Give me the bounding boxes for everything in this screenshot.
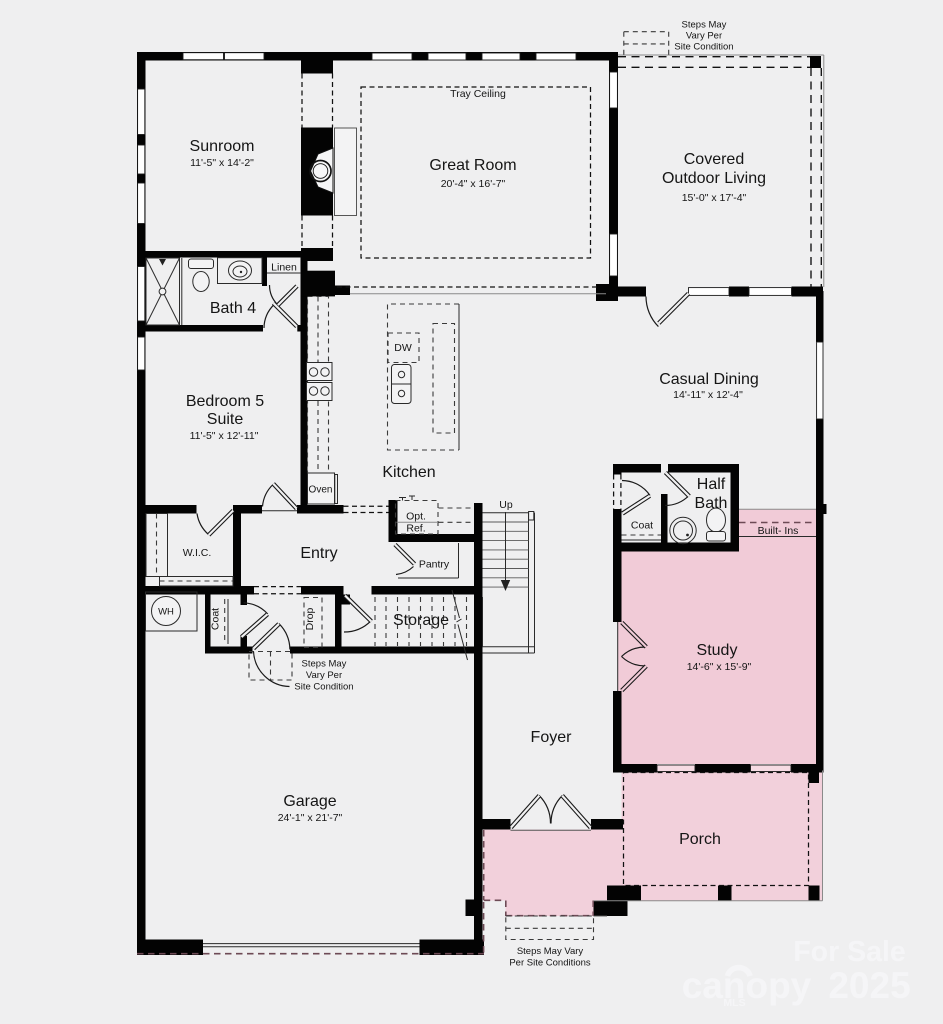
svg-text:Covered: Covered <box>684 151 744 168</box>
svg-text:Steps May Vary: Steps May Vary <box>517 946 584 957</box>
svg-text:Foyer: Foyer <box>531 729 573 746</box>
svg-text:Porch: Porch <box>679 831 721 848</box>
svg-text:Linen: Linen <box>271 262 297 274</box>
svg-text:Outdoor Living: Outdoor Living <box>662 170 766 187</box>
svg-text:Bedroom 5: Bedroom 5 <box>186 393 264 410</box>
svg-text:Drop: Drop <box>304 607 316 630</box>
svg-text:Opt.: Opt. <box>406 511 426 523</box>
svg-text:Sunroom: Sunroom <box>190 138 255 155</box>
svg-text:Suite: Suite <box>207 411 244 428</box>
svg-text:Pantry: Pantry <box>419 559 450 571</box>
svg-text:11'-5" x 12'-11": 11'-5" x 12'-11" <box>190 430 259 442</box>
svg-text:Site Condition: Site Condition <box>294 682 353 693</box>
svg-text:Bath 4: Bath 4 <box>210 300 256 317</box>
svg-text:15'-0" x 17'-4": 15'-0" x 17'-4" <box>682 192 747 204</box>
svg-text:Coat: Coat <box>631 520 653 532</box>
svg-text:Half: Half <box>697 476 726 493</box>
svg-text:Steps May: Steps May <box>302 659 347 670</box>
svg-text:MLS: MLS <box>723 997 745 1009</box>
svg-text:14'-6" x 15'-9": 14'-6" x 15'-9" <box>687 661 752 673</box>
svg-text:Casual Dining: Casual Dining <box>659 371 759 388</box>
svg-text:W.I.C.: W.I.C. <box>183 547 212 559</box>
svg-text:Study: Study <box>697 642 738 659</box>
svg-text:Per Site Conditions: Per Site Conditions <box>509 958 591 969</box>
svg-text:Garage: Garage <box>283 793 336 810</box>
svg-text:WH: WH <box>158 607 174 618</box>
svg-text:Entry: Entry <box>300 545 337 562</box>
svg-text:20'-4" x 16'-7": 20'-4" x 16'-7" <box>441 178 506 190</box>
svg-text:Storage: Storage <box>393 612 449 629</box>
svg-text:Ref.: Ref. <box>406 523 425 535</box>
svg-text:Vary Per: Vary Per <box>306 670 342 681</box>
svg-text:Bath: Bath <box>695 495 728 512</box>
svg-text:Steps May: Steps May <box>682 20 727 31</box>
svg-text:For Sale: For Sale <box>793 936 905 968</box>
svg-text:Great Room: Great Room <box>429 157 516 174</box>
svg-text:2025: 2025 <box>828 965 910 1006</box>
svg-text:Vary Per: Vary Per <box>686 31 722 42</box>
svg-text:11'-5" x 14'-2": 11'-5" x 14'-2" <box>190 157 254 169</box>
svg-text:Kitchen: Kitchen <box>382 464 435 481</box>
svg-text:Site Condition: Site Condition <box>674 42 733 53</box>
svg-text:Built- Ins: Built- Ins <box>758 525 799 537</box>
svg-text:Up: Up <box>499 499 513 511</box>
svg-text:14'-11" x 12'-4": 14'-11" x 12'-4" <box>673 389 743 401</box>
svg-text:24'-1" x 21'-7": 24'-1" x 21'-7" <box>278 812 343 824</box>
svg-text:Tray Ceiling: Tray Ceiling <box>450 88 506 100</box>
svg-text:DW: DW <box>394 342 412 354</box>
svg-text:Oven: Oven <box>309 485 333 496</box>
svg-text:Coat: Coat <box>210 608 222 630</box>
